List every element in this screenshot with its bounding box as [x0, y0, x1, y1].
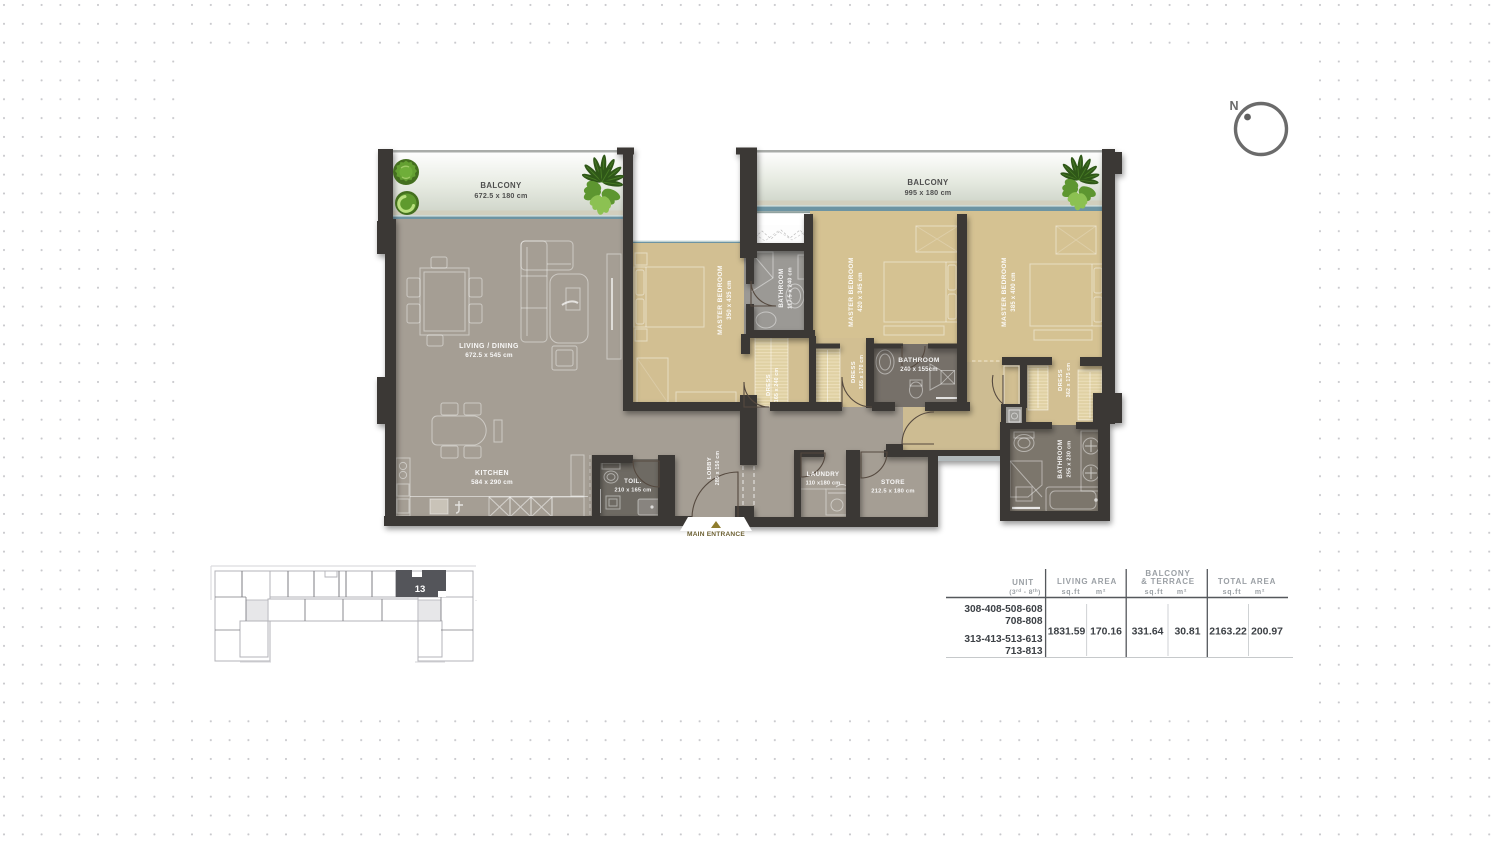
svg-text:117.5 x 240 cm: 117.5 x 240 cm [787, 267, 793, 309]
svg-text:m²: m² [1177, 589, 1187, 596]
svg-text:DRESS: DRESS [766, 374, 772, 396]
svg-text:1831.59: 1831.59 [1048, 627, 1086, 638]
svg-text:sq.ft: sq.ft [1062, 589, 1081, 596]
svg-text:165 x 240 cm: 165 x 240 cm [774, 368, 780, 403]
svg-text:MASTER BEDROOM: MASTER BEDROOM [848, 257, 855, 327]
svg-text:BATHROOM: BATHROOM [778, 268, 785, 307]
svg-text:BALCONY: BALCONY [480, 181, 522, 190]
svg-text:212.5 x 180 cm: 212.5 x 180 cm [871, 489, 914, 495]
svg-text:313-413-513-613: 313-413-513-613 [964, 634, 1043, 645]
svg-text:240 x 155cm: 240 x 155cm [900, 367, 938, 373]
svg-text:LOBBY: LOBBY [707, 457, 713, 479]
svg-text:N: N [1229, 99, 1238, 113]
svg-text:995 x 180 cm: 995 x 180 cm [905, 188, 952, 197]
svg-text:331.64: 331.64 [1132, 627, 1164, 638]
svg-text:350 x 435 cm: 350 x 435 cm [727, 280, 733, 319]
svg-text:& TERRACE: & TERRACE [1141, 577, 1195, 586]
svg-text:672.5 x 180 cm: 672.5 x 180 cm [474, 191, 527, 200]
svg-text:200.97: 200.97 [1251, 627, 1283, 638]
svg-text:713-813: 713-813 [1005, 646, 1043, 657]
svg-text:TOTAL AREA: TOTAL AREA [1218, 577, 1276, 586]
svg-text:255 x 230 cm: 255 x 230 cm [1066, 441, 1072, 478]
svg-text:165 x 170 cm: 165 x 170 cm [859, 355, 865, 390]
svg-text:13: 13 [415, 584, 426, 595]
svg-text:LIVING AREA: LIVING AREA [1057, 577, 1117, 586]
svg-text:308-408-508-608: 308-408-508-608 [964, 604, 1043, 615]
svg-text:BATHROOM: BATHROOM [898, 357, 940, 364]
svg-text:m²: m² [1255, 589, 1265, 596]
svg-text:BALCONY: BALCONY [907, 178, 949, 187]
svg-text:30.81: 30.81 [1174, 627, 1200, 638]
svg-text:LAUNDRY: LAUNDRY [807, 471, 840, 478]
svg-text:170.16: 170.16 [1090, 627, 1122, 638]
svg-text:UNIT: UNIT [1012, 578, 1034, 587]
svg-text:sq.ft: sq.ft [1223, 589, 1242, 596]
svg-text:TOIL.: TOIL. [624, 478, 642, 485]
svg-text:110 x180 cm: 110 x180 cm [806, 480, 841, 486]
svg-text:DRESS: DRESS [851, 361, 857, 383]
svg-text:584 x 290 cm: 584 x 290 cm [471, 479, 513, 486]
svg-text:MASTER BEDROOM: MASTER BEDROOM [1001, 257, 1008, 327]
svg-text:STORE: STORE [881, 479, 905, 486]
svg-text:MASTER BEDROOM: MASTER BEDROOM [717, 265, 724, 335]
svg-text:672.5 x 545 cm: 672.5 x 545 cm [465, 352, 513, 359]
svg-text:sq.ft: sq.ft [1145, 589, 1164, 596]
svg-text:m²: m² [1096, 589, 1106, 596]
svg-text:BATHROOM: BATHROOM [1057, 439, 1064, 478]
svg-text:MAIN ENTRANCE: MAIN ENTRANCE [687, 531, 745, 538]
svg-text:2163.22: 2163.22 [1209, 627, 1247, 638]
svg-text:LIVING / DINING: LIVING / DINING [459, 343, 519, 350]
svg-text:285 x 150 cm: 285 x 150 cm [715, 451, 721, 486]
svg-text:KITCHEN: KITCHEN [475, 470, 509, 477]
svg-text:362 x 175 cm: 362 x 175 cm [1066, 363, 1072, 398]
svg-text:708-808: 708-808 [1005, 616, 1043, 627]
svg-text:420 x 345 cm: 420 x 345 cm [858, 272, 864, 311]
svg-text:210 x 165 cm: 210 x 165 cm [615, 487, 652, 493]
svg-text:DRESS: DRESS [1058, 369, 1064, 391]
svg-text:385 x 400 cm: 385 x 400 cm [1011, 272, 1017, 311]
